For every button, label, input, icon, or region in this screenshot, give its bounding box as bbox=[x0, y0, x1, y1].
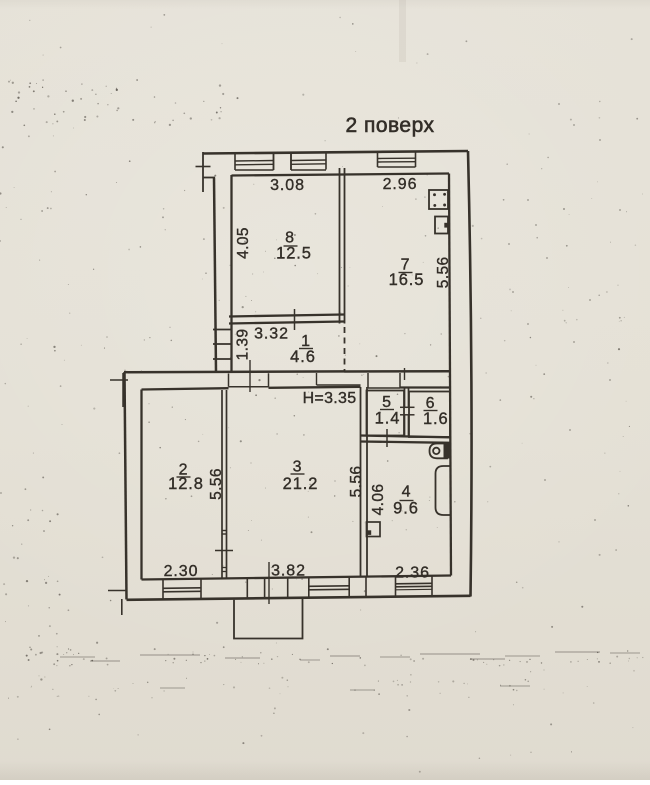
svg-text:1.4: 1.4 bbox=[375, 410, 401, 428]
svg-text:3.08: 3.08 bbox=[270, 177, 305, 194]
svg-text:12.8: 12.8 bbox=[168, 475, 204, 493]
svg-text:5.56: 5.56 bbox=[348, 466, 365, 498]
svg-text:2 поверх: 2 поверх bbox=[345, 114, 434, 137]
svg-text:4.06: 4.06 bbox=[370, 484, 387, 516]
svg-text:9.6: 9.6 bbox=[393, 500, 419, 518]
svg-text:4: 4 bbox=[402, 484, 412, 501]
svg-text:1.6: 1.6 bbox=[423, 410, 449, 428]
svg-text:5.56: 5.56 bbox=[435, 256, 452, 288]
svg-text:12.5: 12.5 bbox=[276, 245, 312, 263]
svg-text:4.05: 4.05 bbox=[235, 227, 252, 259]
svg-text:5.56: 5.56 bbox=[208, 468, 225, 500]
svg-text:2.30: 2.30 bbox=[164, 563, 199, 580]
svg-text:5: 5 bbox=[382, 394, 392, 411]
svg-text:21.2: 21.2 bbox=[283, 475, 319, 493]
svg-text:H=3.35: H=3.35 bbox=[303, 390, 357, 407]
svg-text:2.96: 2.96 bbox=[383, 176, 418, 193]
svg-text:3.32: 3.32 bbox=[254, 326, 289, 343]
svg-text:16.5: 16.5 bbox=[389, 271, 425, 289]
svg-text:4.6: 4.6 bbox=[290, 348, 316, 366]
svg-text:1.39: 1.39 bbox=[235, 329, 252, 361]
svg-text:2.36: 2.36 bbox=[395, 565, 430, 582]
svg-text:3: 3 bbox=[293, 459, 303, 476]
svg-text:3.82: 3.82 bbox=[271, 563, 306, 580]
